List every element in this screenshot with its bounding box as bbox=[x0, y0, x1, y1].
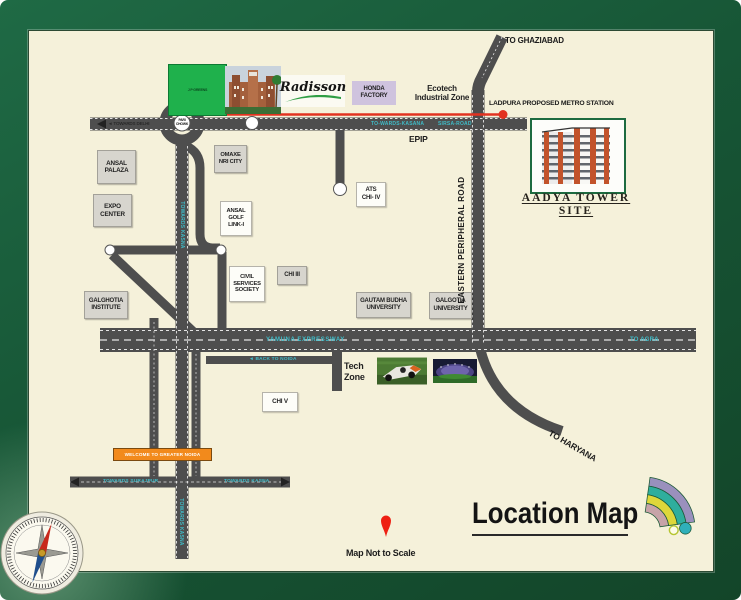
f1-circuit-photo bbox=[377, 357, 427, 385]
compass-icon bbox=[0, 510, 85, 596]
radisson-swoosh-icon bbox=[284, 95, 342, 103]
map-pin-icon bbox=[377, 512, 395, 538]
label-chi-iii: CHI III bbox=[277, 266, 307, 285]
site-name-line2: SITE bbox=[518, 205, 634, 217]
ladpura-metro-label: LADPURA PROPOSED METRO STATION bbox=[489, 100, 614, 107]
towards-kasna-bottom-label: TOWARDS KASNA bbox=[177, 462, 185, 582]
towards-kasna-vertical-label: TOWARDS KASNA bbox=[178, 165, 186, 285]
towards-kasna-label: TOWARDS KASNA bbox=[224, 479, 269, 484]
pari-chowk-label: PARI CHOWK bbox=[173, 116, 191, 130]
label-ansal-palaza: ANSAL PALAZA bbox=[97, 150, 136, 184]
jp-greens-label: J P GREENS bbox=[188, 88, 208, 92]
towards-delhi-road-label: ◄ TOWARDS DELHI bbox=[108, 121, 149, 126]
stadium-photo bbox=[433, 359, 477, 383]
site-name: AADYA TOWER SITE bbox=[518, 192, 634, 217]
site-name-line1: AADYA TOWER bbox=[518, 192, 634, 204]
towards-surajpur-label: TOWARDS SURAJPUR bbox=[103, 479, 158, 484]
title-underline bbox=[472, 534, 628, 536]
towards-kasana-road-label: TO-WARDS-KASANA bbox=[371, 121, 424, 127]
to-ghaziabad-label: TO GHAZIABAD bbox=[505, 36, 564, 45]
to-agra-label: TO AGRA bbox=[630, 337, 659, 343]
radisson-logo-text: Radisson bbox=[280, 80, 346, 95]
radisson-logo: Radisson bbox=[281, 75, 345, 107]
eastern-peripheral-road-label: EASTERN PERIPHERAL ROAD bbox=[455, 175, 467, 305]
sirsa-road-label: SIRSA-ROAD bbox=[438, 121, 472, 127]
radisson-hotel-photo bbox=[225, 66, 281, 114]
aadya-tower-photo bbox=[530, 118, 626, 194]
label-ats-chi-iv: ATS CHI- IV bbox=[356, 182, 386, 207]
back-to-noida-label: ◄ BACK TO NOIDA bbox=[249, 357, 297, 362]
label-galghotia-institute: GALGHOTIA INSTITUTE bbox=[84, 291, 128, 319]
label-omaxe-nri-city: OMAXE NRI CITY bbox=[214, 145, 247, 173]
builder-logo-icon bbox=[635, 473, 697, 537]
label-chi-v: CHI V bbox=[262, 392, 298, 412]
scale-note: Map Not to Scale bbox=[346, 548, 415, 558]
ecotech-zone-label: Ecotech Industrial Zone bbox=[408, 81, 476, 105]
page-title: Location Map bbox=[472, 497, 638, 531]
label-expo-center: EXPO CENTER bbox=[93, 194, 132, 227]
metro-station-dot bbox=[499, 110, 508, 119]
honda-factory-label: HONDA FACTORY bbox=[352, 81, 396, 105]
welcome-greater-noida-sign: WELCOME TO GREATER NOIDA bbox=[113, 448, 212, 461]
epip-label: EPIP bbox=[409, 134, 428, 144]
label-ansal-golf-link: ANSAL GOLF LINK-I bbox=[220, 201, 252, 236]
tech-zone-label: Tech Zone bbox=[344, 360, 376, 384]
yamuna-expressway-label: YAMUNA EXPRESSWAY bbox=[266, 337, 345, 343]
location-map-page: J P GREENS Radisson HONDA F bbox=[0, 0, 741, 600]
label-civil-services-society: CIVIL SERVICES SOCIETY bbox=[229, 266, 265, 302]
label-gautam-budha-university: GAUTAM BUDHA UNIVERSITY bbox=[356, 292, 411, 318]
jp-greens-area: J P GREENS bbox=[168, 64, 227, 116]
